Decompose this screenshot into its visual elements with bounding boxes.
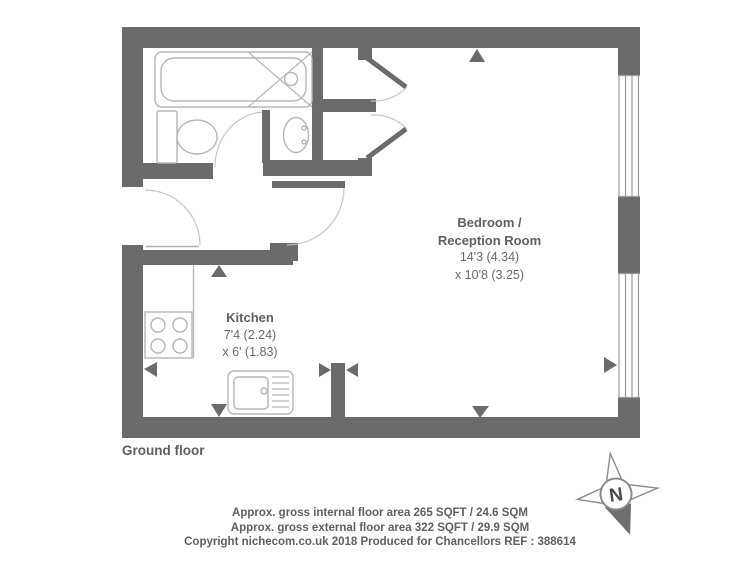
door-leaf-cupboard-bottom xyxy=(367,129,406,158)
measure-triangle-up2-icon xyxy=(211,265,227,277)
window-right-upper-icon xyxy=(618,75,640,197)
bedroom-dims-line2: x 10'8 (3.25) xyxy=(407,267,572,285)
kitchen-dims-line2: x 6' (1.83) xyxy=(180,344,320,362)
kitchen-dims-line1: 7'4 (2.24) xyxy=(180,327,320,345)
measure-triangle-down2-icon xyxy=(211,404,227,417)
footer: Approx. gross internal floor area 265 SQ… xyxy=(5,506,750,550)
room-label-kitchen: Kitchen 7'4 (2.24) x 6' (1.83) xyxy=(180,309,320,362)
wall-kitchen-top xyxy=(140,250,293,265)
door-arc-cupboard-top xyxy=(371,87,407,101)
window-right-lower-icon xyxy=(618,274,640,398)
door-leaf-hall-bedroom xyxy=(272,181,345,188)
door-leaf-cupboard-top xyxy=(367,58,406,87)
floor-label: Ground floor xyxy=(122,443,204,458)
wall-right-upper-corner xyxy=(618,48,640,75)
wall-bottom xyxy=(122,417,640,438)
measure-triangle-right-icon xyxy=(604,357,617,373)
wall-bathroom-right xyxy=(312,48,323,176)
measure-triangle-left2-icon xyxy=(346,363,358,377)
measure-triangle-left-icon xyxy=(144,362,157,377)
footer-copyright: Copyright nichecom.co.uk 2018 Produced f… xyxy=(5,535,750,550)
compass-north-label: N xyxy=(608,484,625,507)
measure-triangle-down-icon xyxy=(472,406,489,418)
door-arc-cupboard-bottom xyxy=(371,115,407,129)
wall-left-lower xyxy=(122,245,143,417)
measure-triangle-right2-icon xyxy=(319,363,331,377)
room-label-bedroom: Bedroom / Reception Room 14'3 (4.34) x 1… xyxy=(407,214,572,284)
bedroom-name-line1: Bedroom / xyxy=(407,214,572,232)
east-arrow-icon xyxy=(629,481,659,500)
kitchen-name: Kitchen xyxy=(180,309,320,327)
wall-kitchen-divider-stub xyxy=(331,363,345,417)
wall-left-upper xyxy=(122,27,143,187)
basin-icon xyxy=(284,118,309,153)
wall-top xyxy=(122,27,640,48)
door-arc-hall-bedroom xyxy=(287,188,344,245)
wall-toilet-basin-divider xyxy=(262,110,270,163)
measure-triangle-up-icon xyxy=(469,49,485,62)
wall-right-pier xyxy=(618,197,640,273)
door-arc-entrance xyxy=(145,190,200,245)
wall-cupboard-divider xyxy=(323,99,376,112)
wall-right-lower-corner xyxy=(618,398,640,418)
footer-internal-area: Approx. gross internal floor area 265 SQ… xyxy=(5,506,750,521)
west-arrow-icon xyxy=(576,489,603,507)
bedroom-name-line2: Reception Room xyxy=(407,232,572,250)
floor-plan-drawing: N xyxy=(0,0,750,563)
floor-plan-page: N Bedroom / Reception Room 14'3 (4.34) x… xyxy=(0,0,750,563)
bathtub-icon xyxy=(155,52,312,107)
sink-icon xyxy=(228,371,293,414)
toilet-icon xyxy=(157,111,217,163)
footer-external-area: Approx. gross external floor area 322 SQ… xyxy=(5,521,750,536)
bedroom-dims-line1: 14'3 (4.34) xyxy=(407,249,572,267)
north-arrow-icon xyxy=(603,452,622,481)
wall-cupboard-stub-bottom xyxy=(358,158,372,176)
door-arc-bathroom xyxy=(215,112,262,167)
wall-bathroom-bottom-left xyxy=(143,163,213,179)
